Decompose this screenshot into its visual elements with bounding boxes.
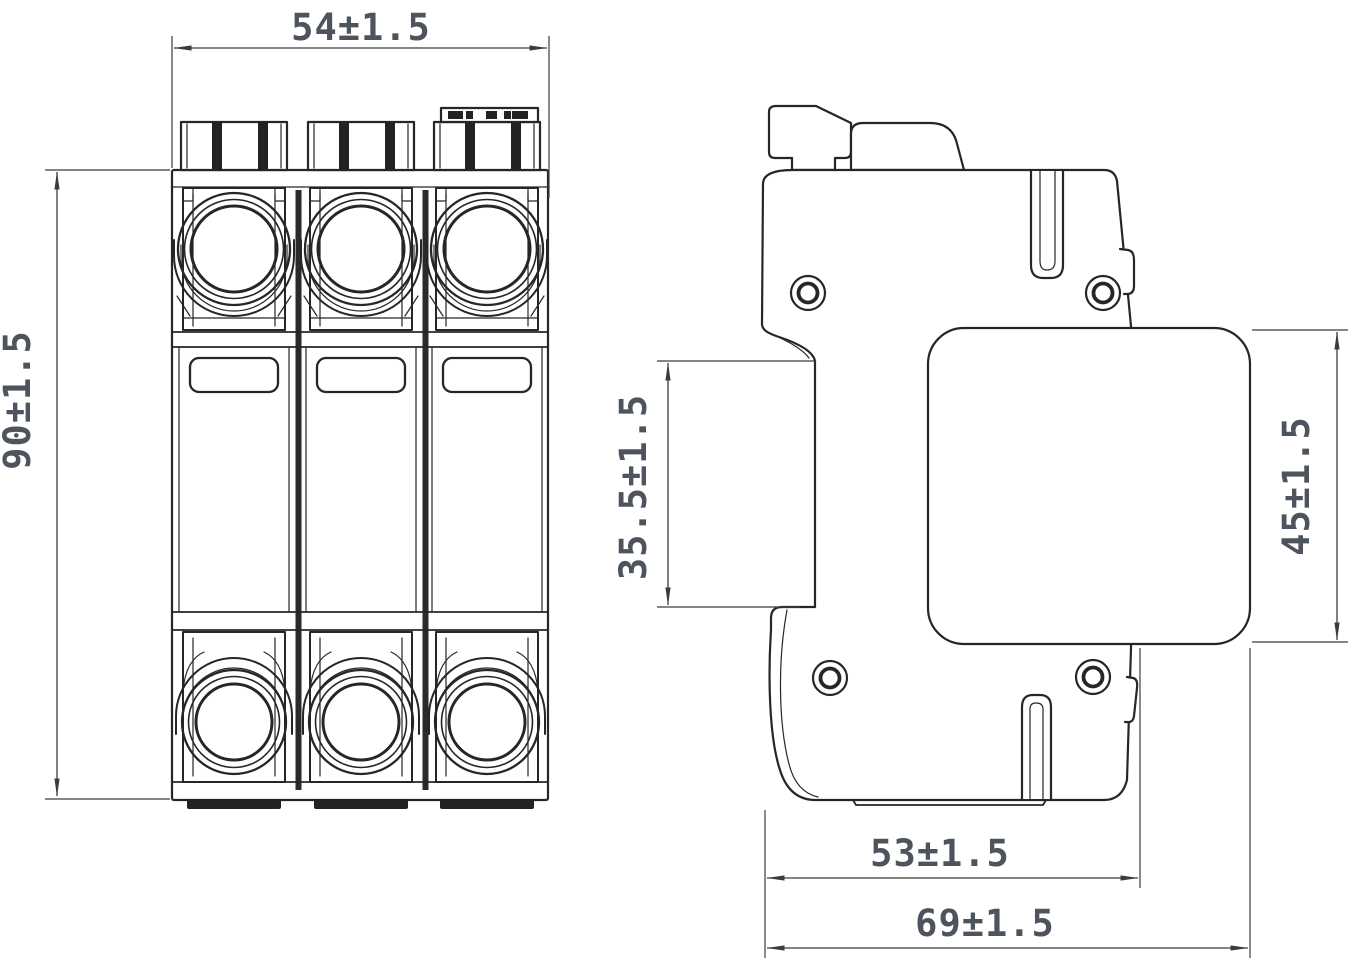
screw-hole	[813, 661, 847, 695]
dimension-label-side-body-depth: 53±1.5	[870, 832, 1010, 875]
side-top-block	[851, 123, 964, 170]
screw-hole	[1086, 276, 1120, 310]
module-divider	[296, 190, 302, 790]
side-upper-slot	[1031, 171, 1063, 278]
screw-hole	[791, 276, 825, 310]
side-plugin-module	[928, 328, 1250, 644]
module-divider	[423, 190, 429, 790]
side-top-lug	[769, 106, 851, 170]
dimension-label-side-module: 45±1.5	[1275, 416, 1318, 556]
side-lower-slot	[1022, 695, 1051, 799]
screw-hole	[1076, 660, 1110, 694]
dimension-label-side-recess: 35.5±1.5	[612, 394, 655, 580]
dimension-side-recess-height: 35.5±1.5	[612, 361, 816, 607]
dimension-side-module-height: 45±1.5	[1252, 330, 1348, 642]
front-view	[172, 108, 548, 809]
dimension-front-height: 90±1.5	[0, 170, 170, 799]
dimension-label-front-width: 54±1.5	[291, 6, 431, 49]
drawing-sheet: 54±1.5 90±1.5 35.5±1.5 45±1.5 53	[0, 0, 1364, 970]
dimension-label-side-total-depth: 69±1.5	[915, 902, 1055, 945]
dimension-drawing: 54±1.5 90±1.5 35.5±1.5 45±1.5 53	[0, 0, 1364, 970]
side-latch-lower	[1125, 677, 1137, 722]
dimension-label-front-height: 90±1.5	[0, 330, 39, 470]
front-body-outline	[172, 170, 548, 800]
side-view	[762, 106, 1250, 805]
